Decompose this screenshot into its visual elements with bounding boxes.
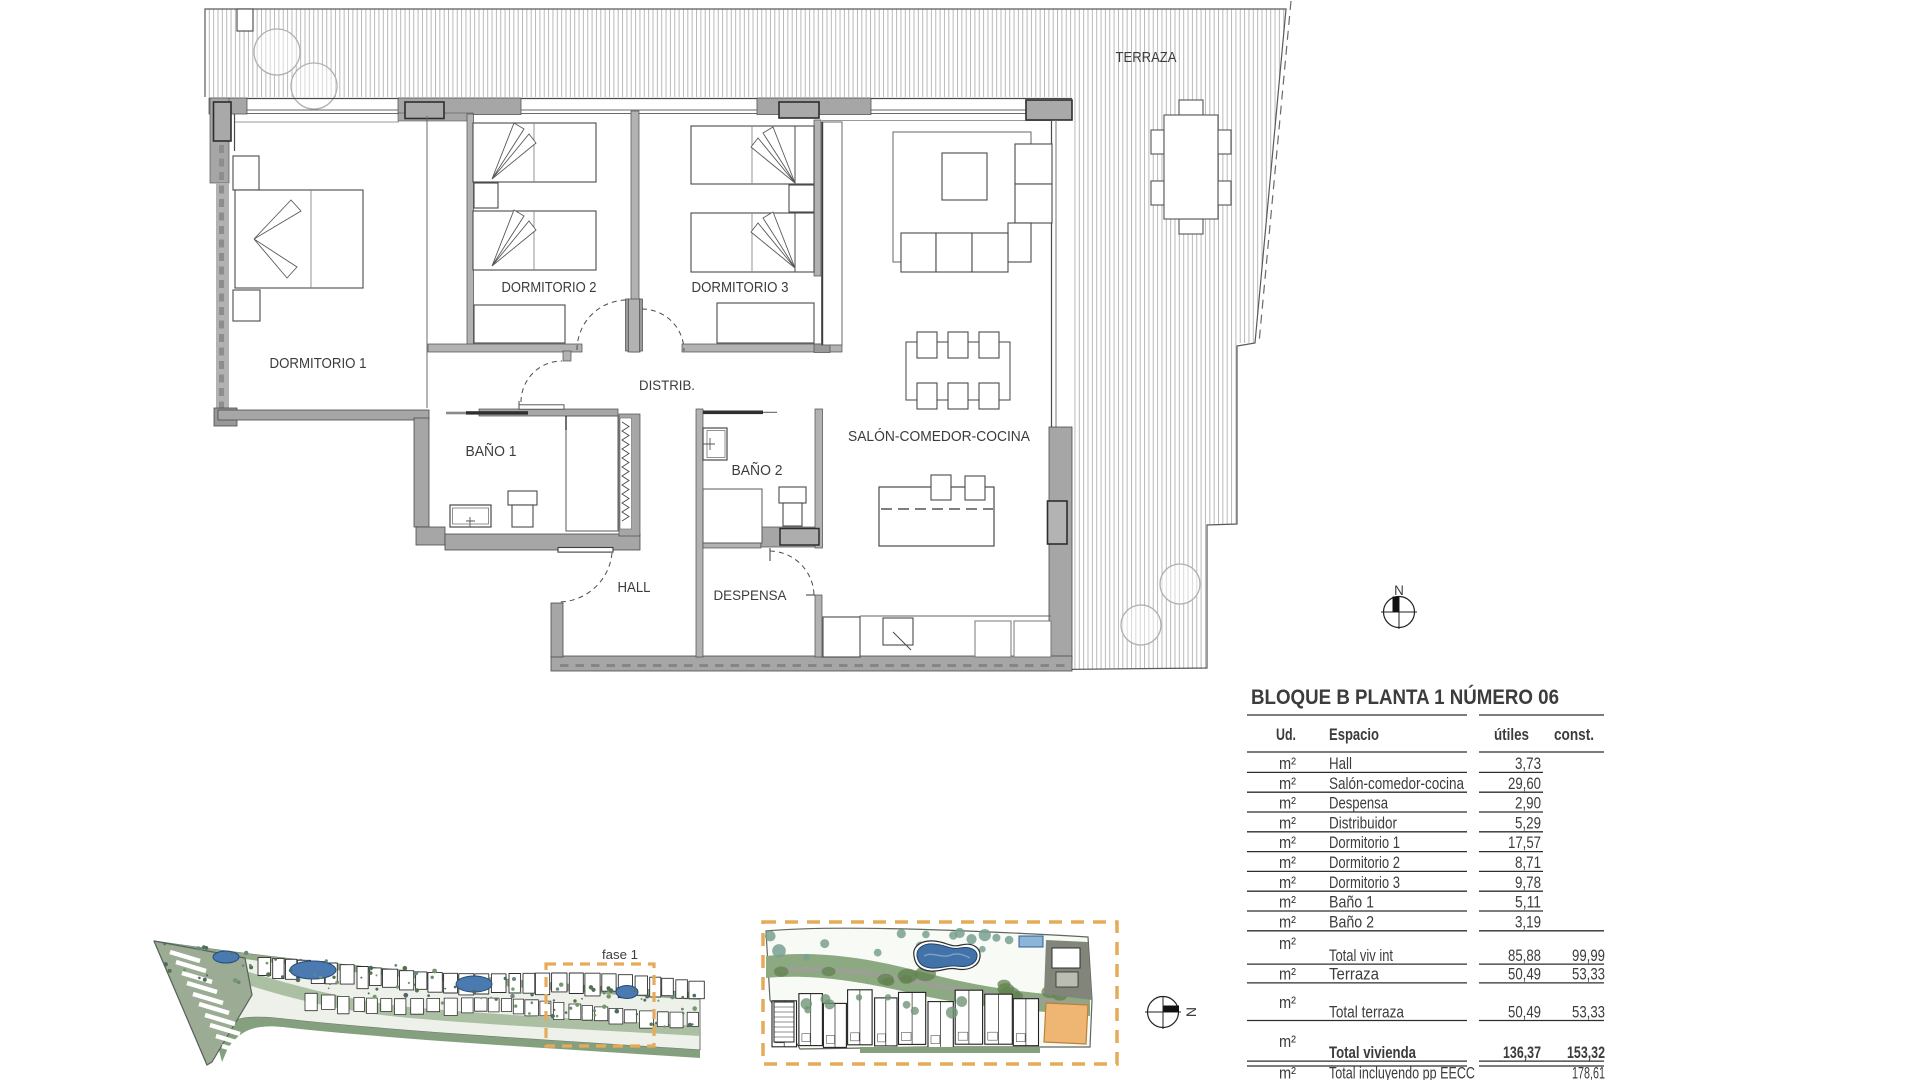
svg-text:BLOQUE B PLANTA 1 NÚMERO 06: BLOQUE B PLANTA 1 NÚMERO 06 [1251, 685, 1559, 709]
svg-text:50,49: 50,49 [1508, 1004, 1541, 1022]
svg-text:Espacio: Espacio [1329, 725, 1379, 744]
svg-text:m²: m² [1279, 935, 1296, 953]
svg-text:Baño 1: Baño 1 [1329, 894, 1374, 912]
svg-text:Total incluyendo pp EECC: Total incluyendo pp EECC [1329, 1065, 1475, 1080]
svg-text:m²: m² [1279, 755, 1296, 773]
svg-text:DORMITORIO 1: DORMITORIO 1 [270, 356, 367, 372]
svg-text:BAÑO 1: BAÑO 1 [466, 443, 517, 460]
svg-text:5,11: 5,11 [1515, 894, 1541, 912]
svg-text:53,33: 53,33 [1572, 966, 1605, 984]
svg-text:m²: m² [1279, 795, 1296, 813]
svg-text:m²: m² [1279, 1065, 1296, 1080]
svg-text:fase 1: fase 1 [602, 947, 638, 962]
svg-text:HALL: HALL [618, 580, 651, 596]
svg-text:DORMITORIO 3: DORMITORIO 3 [692, 280, 789, 296]
svg-text:Ud.: Ud. [1276, 725, 1296, 744]
svg-text:53,33: 53,33 [1572, 1004, 1605, 1022]
svg-text:Dormitorio 3: Dormitorio 3 [1329, 874, 1400, 892]
svg-text:3,19: 3,19 [1515, 913, 1541, 931]
svg-text:85,88: 85,88 [1508, 947, 1541, 965]
svg-text:m²: m² [1279, 775, 1296, 793]
svg-text:Despensa: Despensa [1329, 795, 1389, 813]
svg-text:N: N [1183, 1007, 1199, 1017]
svg-text:Total vivienda: Total vivienda [1329, 1044, 1417, 1062]
svg-text:SALÓN-COMEDOR-COCINA: SALÓN-COMEDOR-COCINA [848, 428, 1030, 445]
svg-text:153,32: 153,32 [1567, 1044, 1605, 1062]
svg-text:m²: m² [1279, 966, 1296, 984]
svg-text:m²: m² [1279, 1033, 1296, 1051]
svg-text:178,61: 178,61 [1572, 1065, 1605, 1080]
svg-text:DORMITORIO 2: DORMITORIO 2 [502, 280, 597, 296]
svg-text:Total terraza: Total terraza [1329, 1004, 1405, 1022]
svg-text:m²: m² [1279, 874, 1296, 892]
svg-text:Total viv int: Total viv int [1329, 947, 1393, 965]
svg-text:TERRAZA: TERRAZA [1116, 49, 1177, 66]
svg-text:2,90: 2,90 [1515, 795, 1541, 813]
svg-text:50,49: 50,49 [1508, 966, 1541, 984]
svg-text:136,37: 136,37 [1503, 1044, 1541, 1062]
svg-text:m²: m² [1279, 854, 1296, 872]
svg-text:17,57: 17,57 [1508, 834, 1541, 852]
svg-text:99,99: 99,99 [1572, 947, 1605, 965]
svg-text:Hall: Hall [1329, 755, 1352, 773]
svg-text:Distribuidor: Distribuidor [1329, 814, 1397, 832]
svg-text:29,60: 29,60 [1508, 775, 1541, 793]
svg-text:5,29: 5,29 [1515, 814, 1541, 832]
svg-text:Dormitorio 2: Dormitorio 2 [1329, 854, 1400, 872]
svg-text:Terraza: Terraza [1329, 966, 1380, 984]
svg-text:m²: m² [1279, 994, 1296, 1012]
svg-text:m²: m² [1279, 913, 1296, 931]
svg-text:m²: m² [1279, 834, 1296, 852]
svg-text:BAÑO 2: BAÑO 2 [732, 462, 783, 479]
svg-text:m²: m² [1279, 814, 1296, 832]
svg-text:Salón-comedor-cocina: Salón-comedor-cocina [1329, 775, 1465, 793]
svg-text:const.: const. [1554, 725, 1594, 744]
svg-text:8,71: 8,71 [1515, 854, 1541, 872]
svg-text:DESPENSA: DESPENSA [714, 587, 788, 603]
svg-text:Dormitorio 1: Dormitorio 1 [1329, 834, 1400, 852]
svg-text:9,78: 9,78 [1515, 874, 1541, 892]
svg-text:3,73: 3,73 [1515, 755, 1541, 773]
svg-text:N: N [1394, 583, 1404, 598]
svg-text:DISTRIB.: DISTRIB. [639, 378, 695, 393]
svg-text:útiles: útiles [1494, 725, 1529, 744]
svg-text:m²: m² [1279, 894, 1296, 912]
svg-text:Baño 2: Baño 2 [1329, 913, 1374, 931]
